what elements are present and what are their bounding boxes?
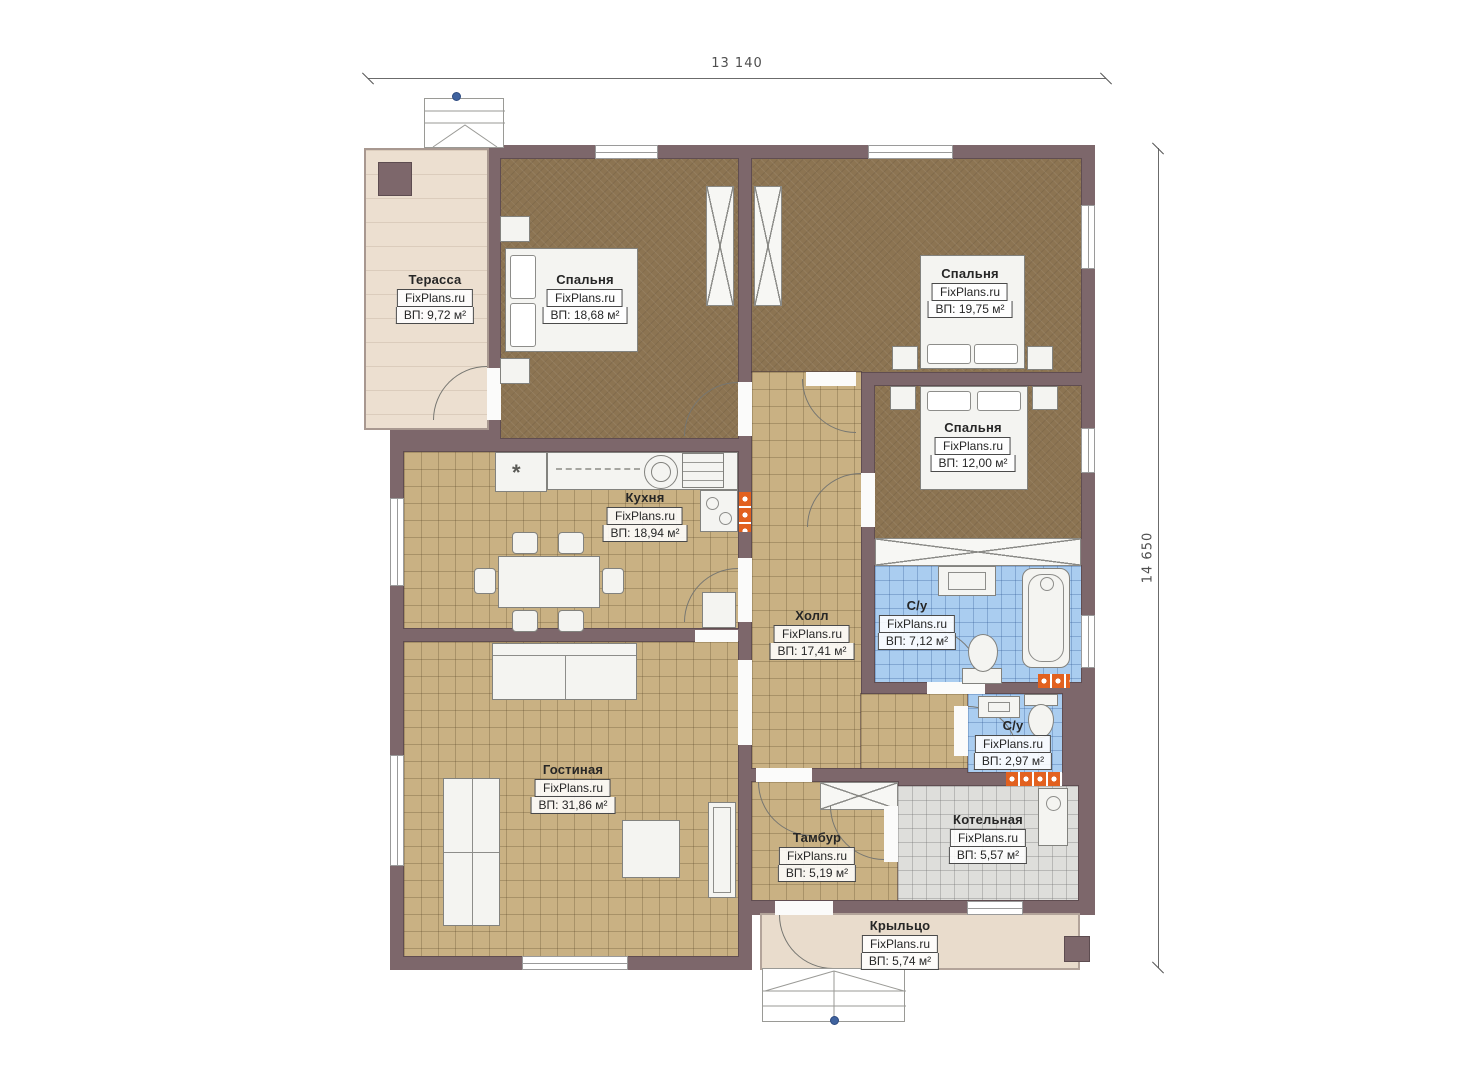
chair	[512, 532, 538, 554]
door-opening-bedroom1	[738, 382, 752, 436]
bathtub	[1022, 568, 1070, 668]
window-bedroom2-top	[868, 145, 953, 159]
closet-bedroom3	[875, 538, 1081, 566]
boiler-unit	[1038, 788, 1068, 846]
room-name: Холл	[795, 608, 828, 623]
kitchen-vent-grid	[682, 453, 724, 488]
watermark: FixPlans.ru	[779, 847, 855, 865]
nightstand	[892, 346, 918, 370]
room-label-porch: Крыльцо FixPlans.ru ВП: 5,74 м²	[861, 918, 939, 970]
chair	[474, 568, 496, 594]
door-opening-bedroom3	[861, 473, 875, 527]
terrace-steps	[424, 98, 504, 148]
closet-bedroom1	[706, 186, 734, 306]
room-label-hall: Холл FixPlans.ru ВП: 17,41 м²	[770, 608, 855, 660]
living-wardrobe	[443, 778, 500, 926]
coffee-table	[622, 820, 680, 878]
door-opening-entrance	[775, 901, 833, 915]
room-area: ВП: 5,57 м²	[949, 847, 1027, 864]
dimension-line-top	[368, 78, 1106, 79]
room-label-boiler: Котельная FixPlans.ru ВП: 5,57 м²	[949, 812, 1027, 864]
room-area: ВП: 5,19 м²	[778, 865, 856, 882]
window-living-bottom	[522, 956, 628, 970]
room-area: ВП: 12,00 м²	[931, 455, 1016, 472]
room-name: Тамбур	[793, 830, 841, 845]
room-label-terrace: Терасса FixPlans.ru ВП: 9,72 м²	[396, 272, 474, 324]
room-area: ВП: 9,72 м²	[396, 307, 474, 324]
radiator-kitchen	[739, 492, 751, 532]
chair	[558, 610, 584, 632]
watermark: FixPlans.ru	[862, 935, 938, 953]
room-name: Спальня	[944, 420, 1002, 435]
room-label-tambour: Тамбур FixPlans.ru ВП: 5,19 м²	[778, 830, 856, 882]
window-bedroom3	[1081, 428, 1095, 473]
hall-extension-floor	[861, 694, 968, 768]
door-opening-kitchen	[738, 558, 752, 622]
dimension-line-right	[1158, 148, 1159, 968]
watermark: FixPlans.ru	[932, 283, 1008, 301]
chair	[602, 568, 624, 594]
counter-dash-line	[556, 468, 640, 470]
window-bedroom1	[595, 145, 658, 159]
porch-steps	[762, 968, 905, 1022]
nightstand	[500, 216, 530, 242]
watermark: FixPlans.ru	[397, 289, 473, 307]
watermark: FixPlans.ru	[935, 437, 1011, 455]
window-boiler	[967, 901, 1023, 915]
watermark: FixPlans.ru	[535, 779, 611, 797]
watermark: FixPlans.ru	[774, 625, 850, 643]
nightstand	[500, 358, 530, 384]
nightstand	[890, 386, 916, 410]
kitchen-sink-basin	[651, 462, 671, 482]
watermark: FixPlans.ru	[547, 289, 623, 307]
bathroom2-sink	[978, 696, 1020, 718]
closet-bedroom2	[754, 186, 782, 306]
chair	[558, 532, 584, 554]
room-name: Спальня	[941, 266, 999, 281]
passage-kitchen-living	[695, 630, 738, 642]
door-opening-tambour	[756, 768, 812, 782]
room-name: Кухня	[626, 490, 665, 505]
window-bedroom2-right	[1081, 205, 1095, 269]
kitchen-cabinet	[495, 452, 547, 492]
room-label-bedroom2: Спальня FixPlans.ru ВП: 19,75 м²	[928, 266, 1013, 318]
watermark: FixPlans.ru	[975, 735, 1051, 753]
door-opening-boiler	[884, 806, 898, 862]
room-name: Терасса	[409, 272, 462, 287]
room-name: Крыльцо	[870, 918, 931, 933]
window-kitchen	[390, 498, 404, 586]
marker-dot-bottom	[830, 1016, 839, 1025]
sofa	[492, 643, 637, 700]
room-name: С/у	[1003, 718, 1024, 733]
marker-dot-top	[452, 92, 461, 101]
room-label-living: Гостиная FixPlans.ru ВП: 31,86 м²	[531, 762, 616, 814]
kitchen-stove	[700, 490, 738, 532]
room-area: ВП: 2,97 м²	[974, 753, 1052, 770]
porch-column	[1064, 936, 1090, 962]
room-area: ВП: 5,74 м²	[861, 953, 939, 970]
room-area: ВП: 17,41 м²	[770, 643, 855, 660]
room-label-bedroom1: Спальня FixPlans.ru ВП: 18,68 м²	[543, 272, 628, 324]
terrace-column	[378, 162, 412, 196]
nightstand	[1032, 386, 1058, 410]
room-area: ВП: 19,75 м²	[928, 301, 1013, 318]
door-opening-terrace	[487, 368, 501, 420]
vent-symbol: *	[512, 462, 521, 484]
dimension-width-label: 13 140	[697, 56, 777, 71]
passage-living-hall	[738, 660, 752, 745]
tv-stand	[708, 802, 736, 898]
room-name: С/у	[907, 598, 928, 613]
chair	[512, 610, 538, 632]
room-name: Спальня	[556, 272, 614, 287]
watermark: FixPlans.ru	[607, 507, 683, 525]
dimension-height-label: 14 650	[1141, 518, 1156, 598]
room-name: Котельная	[953, 812, 1023, 827]
dining-table	[498, 556, 600, 608]
window-bathroom1	[1081, 615, 1095, 668]
bedroom2-floor	[752, 159, 1081, 372]
radiator-bathroom1	[1038, 674, 1070, 688]
nightstand	[1027, 346, 1053, 370]
bathroom1-sink	[938, 566, 996, 596]
window-living-left	[390, 755, 404, 866]
kitchen-sideboard	[702, 592, 736, 628]
room-area: ВП: 7,12 м²	[878, 633, 956, 650]
watermark: FixPlans.ru	[879, 615, 955, 633]
room-label-bathroom1: С/у FixPlans.ru ВП: 7,12 м²	[878, 598, 956, 650]
door-opening-bathroom2	[954, 706, 968, 756]
room-area: ВП: 18,68 м²	[543, 307, 628, 324]
room-label-bedroom3: Спальня FixPlans.ru ВП: 12,00 м²	[931, 420, 1016, 472]
watermark: FixPlans.ru	[950, 829, 1026, 847]
terrace-steps-lines	[425, 99, 505, 149]
floor-plan: * Терасса FixPlans.ru ВП: 9,72 м² Спальн…	[0, 0, 1474, 1080]
room-name: Гостиная	[543, 762, 603, 777]
radiator-bathroom2	[1006, 772, 1062, 786]
room-label-kitchen: Кухня FixPlans.ru ВП: 18,94 м²	[603, 490, 688, 542]
room-area: ВП: 31,86 м²	[531, 797, 616, 814]
room-area: ВП: 18,94 м²	[603, 525, 688, 542]
room-label-bathroom2: С/у FixPlans.ru ВП: 2,97 м²	[974, 718, 1052, 770]
porch-steps-lines	[763, 969, 906, 1023]
